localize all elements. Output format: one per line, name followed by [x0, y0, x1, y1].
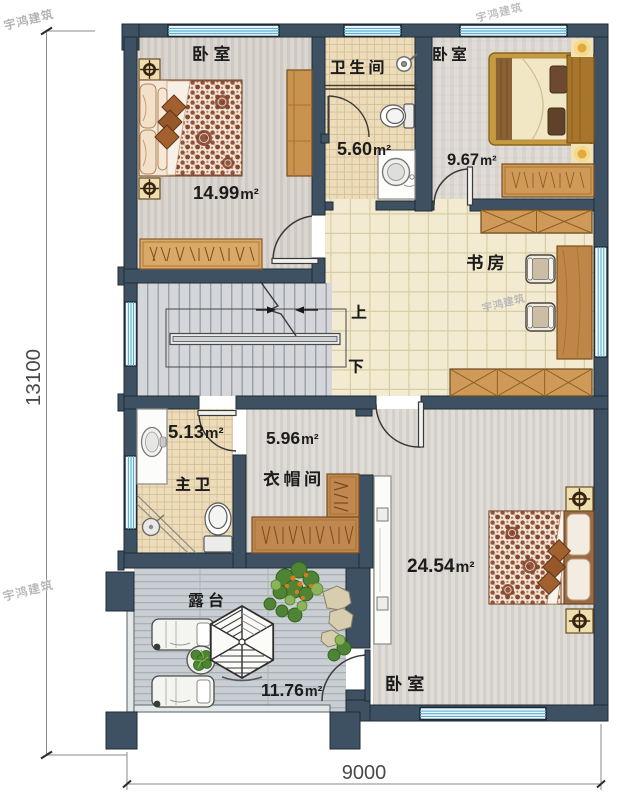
svg-text:13100: 13100 — [22, 349, 45, 406]
svg-text:5.13m²: 5.13m² — [168, 421, 224, 442]
svg-text:14.99m²: 14.99m² — [193, 182, 259, 203]
svg-text:9.67m²: 9.67m² — [447, 151, 497, 169]
svg-text:9000: 9000 — [342, 762, 387, 784]
svg-text:24.54m²: 24.54m² — [407, 556, 475, 577]
